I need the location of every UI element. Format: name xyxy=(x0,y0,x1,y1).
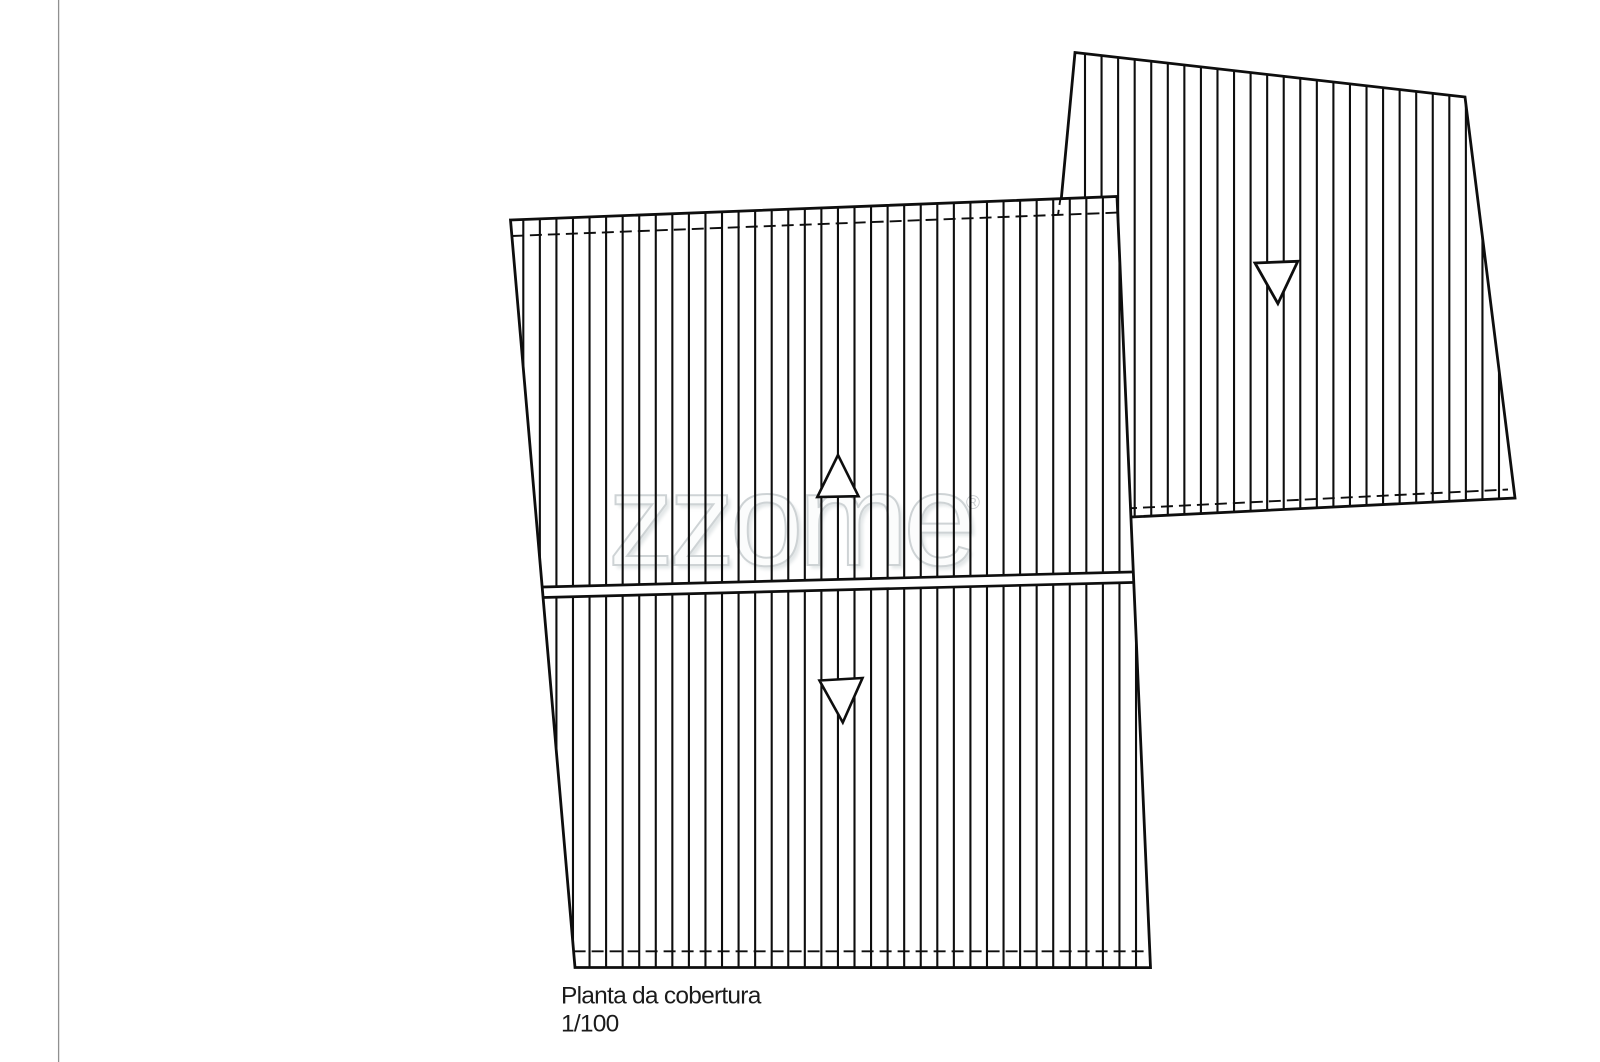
svg-text:zzome: zzome xyxy=(608,446,972,593)
svg-text:Planta da cobertura: Planta da cobertura xyxy=(561,982,762,1009)
svg-text:1/100: 1/100 xyxy=(561,1011,619,1038)
svg-text:®: ® xyxy=(966,493,980,514)
